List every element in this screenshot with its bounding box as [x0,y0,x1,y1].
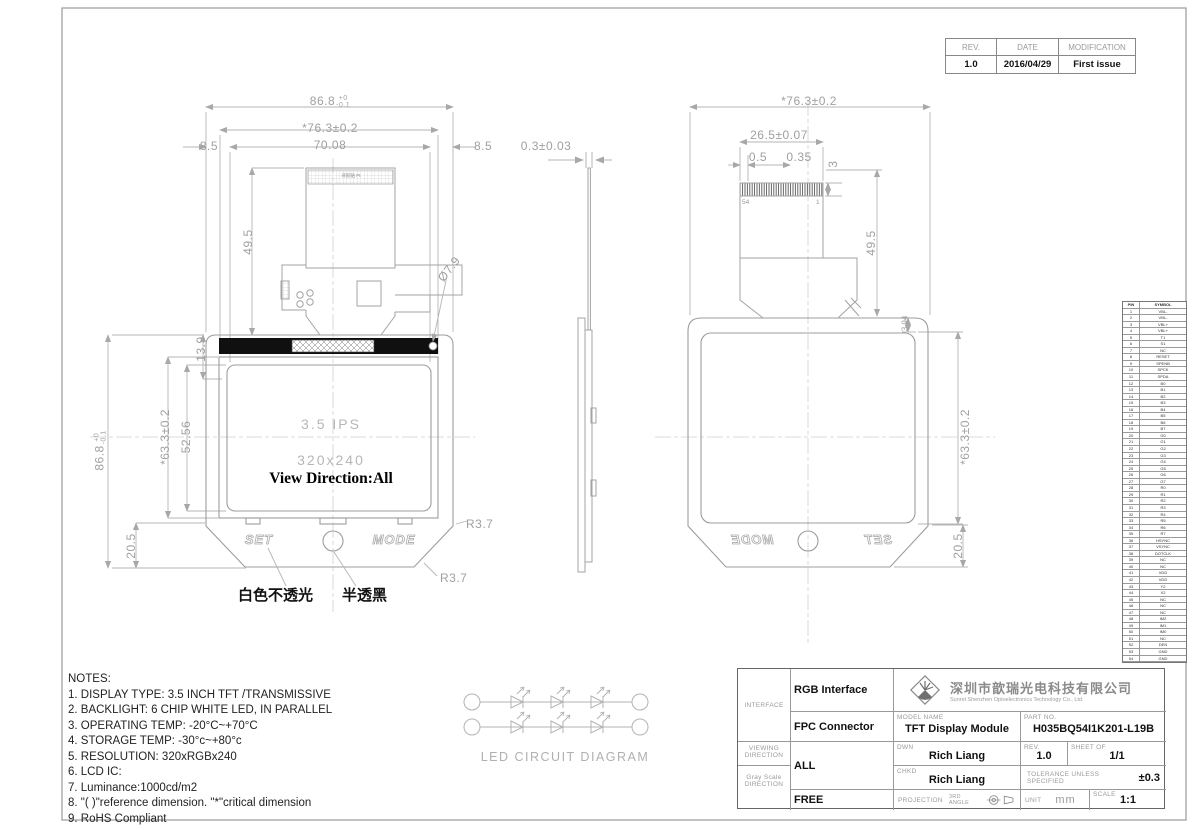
title-block: INTERFACE RGB Interface FPC Connector VI… [737,668,1165,809]
led-circuit-diagram-label: LED CIRCUIT DIAGRAM [460,750,670,764]
part-no-cell: PART NO. H035BQ54I1K201-L19B [1021,712,1166,742]
note-line: 8. "( )"reference dimension. "*"critical… [68,796,332,812]
dim-margin-right: 8.5 [474,139,504,153]
revision-table-header: REV. DATE MODIFICATION [946,39,1135,56]
callout-corner-r2: R3.7 [440,571,480,585]
note-line: 2. BACKLIGHT: 6 CHIP WHITE LED, IN PARAL… [68,703,332,719]
note-line: 4. STORAGE TEMP: -30°c~+80°c [68,734,332,750]
notes-title: NOTES: [68,672,332,688]
view-direction-label: View Direction:All [251,470,411,488]
dim-pin-margin: 0.5 [738,150,778,164]
rev-value: 1.0 [946,56,997,73]
viewing-direction-value: ALL [791,742,894,790]
chkd-cell: CHKD Rich Liang [894,766,1021,790]
symbol-col-header: SYMBOL [1140,302,1186,308]
dim-fpc-length-front: 49.5 [241,222,255,262]
adhesive-band-label: 背胶贴 Pt [324,173,378,179]
notes-list: 1. DISPLAY TYPE: 3.5 INCH TFT /TRANSMISS… [68,688,332,828]
display-resolution-label: 320x240 [281,452,381,468]
dim-active-height: 52.56 [179,413,193,461]
dim-back-overall-width: *76.3±0.2 [749,94,869,108]
semi-transparent-black-annotation: 半透黑 [342,584,387,605]
mode-mirrored-label: MODE [712,532,792,547]
dim-bottom-height: 20.5 [124,526,138,566]
dim-margin-left: 8.5 [188,139,218,153]
note-line: 3. OPERATING TEMP: -20°C~+70°C [68,719,332,735]
note-line: 1. DISPLAY TYPE: 3.5 INCH TFT /TRANSMISS… [68,688,332,704]
unit-cell: UNIT mm [1021,790,1090,810]
scale-cell: SCALE 1:1 [1090,790,1166,810]
interface-label: INTERFACE [738,669,791,742]
company-cell: 深圳市歆瑞光电科技有限公司 Sunrel Shenzhen Optoelectr… [894,669,1166,712]
set-mirrored-label: SET [848,532,908,547]
gray-scale-direction-label: Gray ScaleDIRECTION [738,766,791,810]
gray-scale-direction-value: FREE [791,790,894,810]
pin-54-label: 54 [742,199,749,206]
note-line: 5. RESOLUTION: 320xRGBx240 [68,750,332,766]
dim-active-width: 70.08 [285,138,375,152]
led-circuit-diagram [464,687,648,735]
dim-fpc-length-back: 49.5 [864,223,878,263]
rev-cell: REV. 1.0 [1021,742,1068,766]
sheet-cell: SHEET OF 1/1 [1068,742,1166,766]
centerlines [90,100,995,645]
model-name-cell: MODEL NAME TFT Display Module [894,712,1021,742]
back-fpc [740,183,861,318]
revision-table-row: 1.0 2016/04/29 First issue [946,56,1135,73]
front-dimension-lines [108,107,476,568]
date-value: 2016/04/29 [997,56,1059,73]
tolerance-cell: TOLERANCE UNLESSSPECIFIED ±0.3 [1021,766,1166,790]
dim-bezel-height: *63.3±0.2 [158,400,172,474]
company-name-en: Sunrel Shenzhen Optoelectronics Technolo… [950,697,1132,703]
notes-block: NOTES: 1. DISPLAY TYPE: 3.5 INCH TFT /TR… [68,672,332,827]
back-dimension-lines [690,107,968,567]
side-view [548,152,612,572]
dim-thickness: 0.3±0.03 [514,139,578,153]
set-silkscreen-label: SET [229,532,289,547]
pin-table: PIN SYMBOL 1VBL- 2VBL- 3VBL+ 4VBL+ 5T1 [1122,301,1187,663]
modification-header: MODIFICATION [1059,39,1135,55]
company-logo [908,673,942,707]
pin-table-row: 54GND [1123,656,1186,663]
date-header: DATE [997,39,1059,55]
note-line: 9. RoHS Compliant [68,812,332,828]
front-fpc [281,168,462,335]
dim-back-bottom-height: 20.5 [951,526,965,566]
modification-value: First issue [1059,56,1135,73]
mode-silkscreen-label: MODE [354,532,434,547]
projection-cell: PROJECTION 3RD ANGLE [894,790,1021,810]
pin-1-label: 1 [816,199,820,206]
dim-band-height: 13.9 [194,329,208,369]
dim-overall-height: 86.8+0-0.1 [93,412,108,488]
dim-bezel-width: *76.3±0.2 [270,121,390,135]
rev-header: REV. [946,39,997,55]
white-opaque-annotation: 白色不透光 [238,584,313,605]
dwn-cell: DWN Rich Liang [894,742,1021,766]
dim-connector-width: 26.5±0.07 [729,128,829,142]
dim-top-margin: 3.94 [901,309,910,339]
revision-table: REV. DATE MODIFICATION 1.0 2016/04/29 Fi… [945,38,1136,74]
pin-col-header: PIN [1123,302,1140,308]
dim-pin-pitch: 0.35 [779,150,819,164]
dim-overall-width: 86.8+0-0.1 [285,94,375,109]
company-name-cn: 深圳市歆瑞光电科技有限公司 [950,678,1132,697]
third-angle-projection-icon [987,794,1016,806]
interface-value-1: RGB Interface [791,669,894,712]
front-display-band [219,338,438,354]
note-line: 7. Luminance:1000cd/m2 [68,781,332,797]
callout-corner-r1: R3.7 [466,517,506,531]
dim-connector-height: 3 [826,154,840,174]
interface-value-2: FPC Connector [791,712,894,742]
drawing-sheet: REV. DATE MODIFICATION 1.0 2016/04/29 Fi… [0,0,1200,830]
viewing-direction-label: VIEWINGDIRECTION [738,742,791,766]
note-line: 6. LCD IC: [68,765,332,781]
dim-back-bezel-height: *63.3±0.2 [958,400,972,474]
display-size-label: 3.5 IPS [281,416,381,432]
